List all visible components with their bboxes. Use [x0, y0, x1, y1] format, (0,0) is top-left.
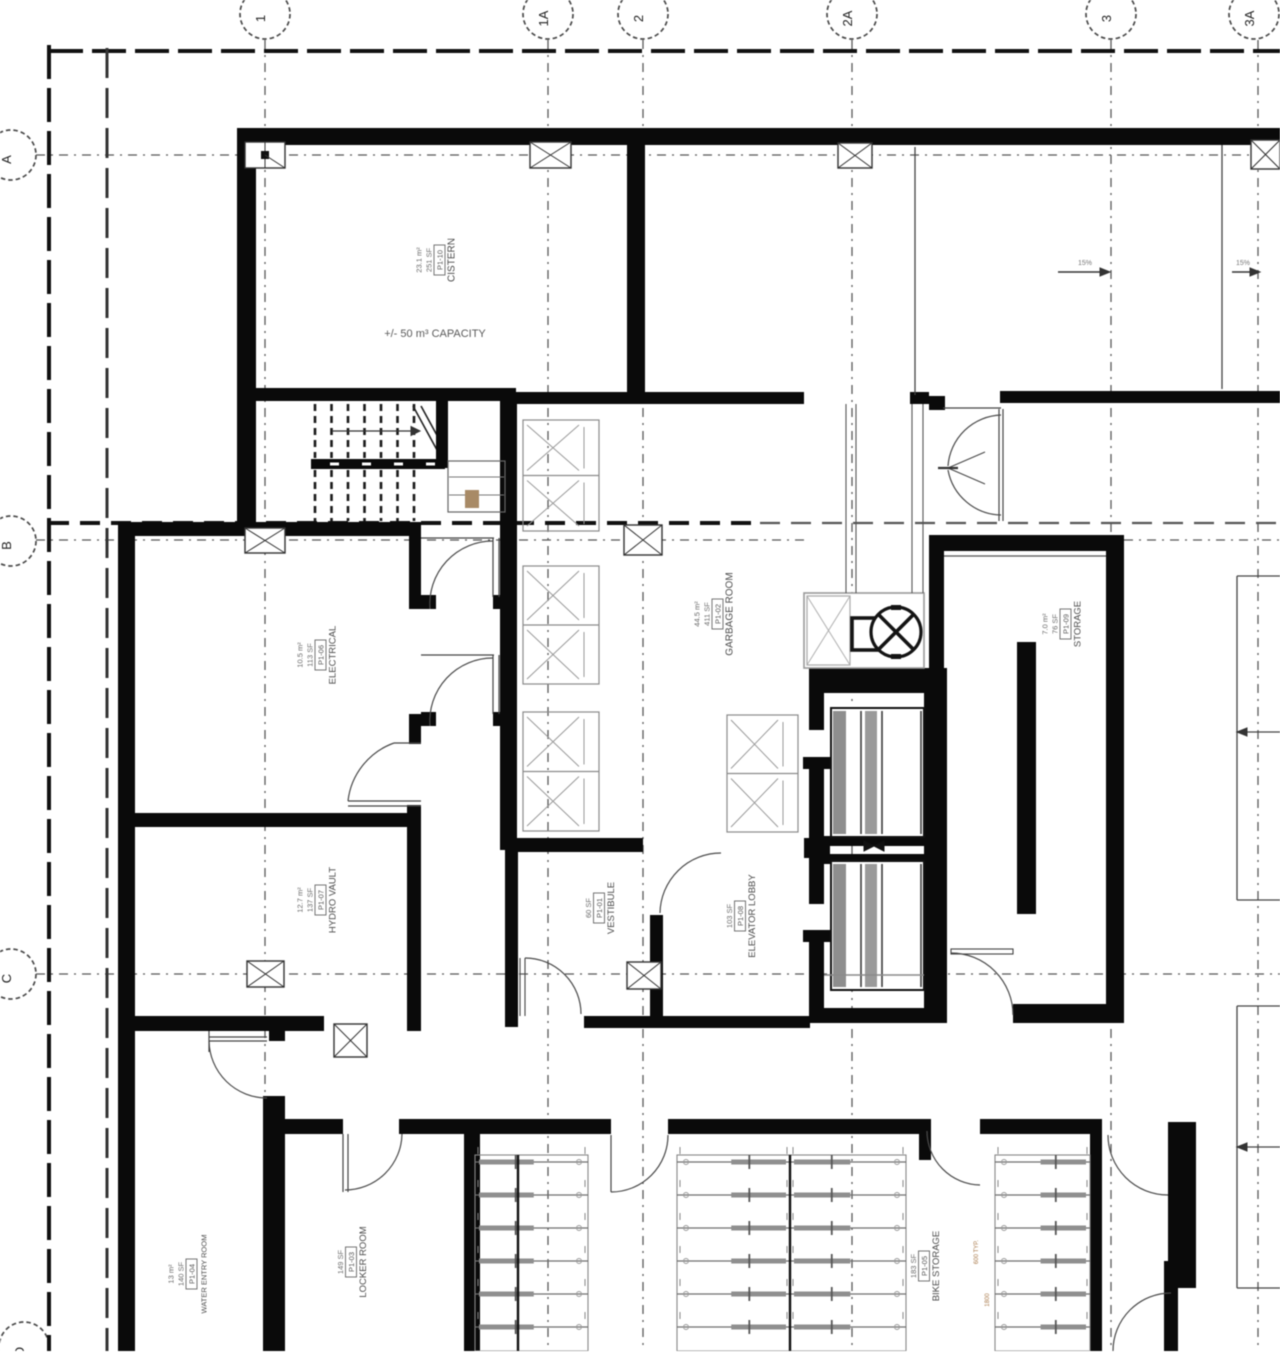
- svg-text:P1-06: P1-06: [317, 645, 326, 665]
- svg-text:ELECTRICAL: ELECTRICAL: [328, 626, 339, 685]
- svg-text:P1-07: P1-07: [317, 890, 326, 910]
- svg-text:P1-04: P1-04: [188, 1264, 197, 1284]
- svg-text:C: C: [0, 974, 14, 983]
- svg-text:BIKE STORAGE: BIKE STORAGE: [931, 1231, 942, 1302]
- svg-text:GARBAGE ROOM: GARBAGE ROOM: [725, 572, 736, 655]
- svg-text:251 SF: 251 SF: [425, 247, 434, 272]
- svg-text:2: 2: [631, 15, 646, 22]
- svg-text:+/- 50 m³ CAPACITY: +/- 50 m³ CAPACITY: [384, 328, 486, 340]
- svg-text:1800: 1800: [985, 1293, 991, 1307]
- svg-text:ELEVATOR LOBBY: ELEVATOR LOBBY: [747, 874, 758, 958]
- svg-text:P1-09: P1-09: [1062, 614, 1071, 634]
- svg-text:137 SF: 137 SF: [306, 887, 315, 912]
- svg-text:LOCKER ROOM: LOCKER ROOM: [358, 1226, 369, 1297]
- svg-text:P1-02: P1-02: [714, 604, 723, 624]
- svg-text:7.0 m²: 7.0 m²: [1041, 613, 1050, 635]
- svg-text:P1-10: P1-10: [436, 250, 445, 270]
- svg-text:P1-08: P1-08: [736, 906, 745, 926]
- svg-text:13 m²: 13 m²: [167, 1264, 176, 1284]
- svg-text:HYDRO VAULT: HYDRO VAULT: [328, 867, 339, 933]
- svg-text:A: A: [0, 155, 14, 164]
- svg-text:VESTIBULE: VESTIBULE: [606, 882, 617, 934]
- svg-text:76 SF: 76 SF: [1051, 614, 1060, 634]
- svg-text:P1-01: P1-01: [595, 898, 604, 918]
- svg-text:P1-05: P1-05: [920, 1256, 929, 1276]
- svg-text:WATER ENTRY ROOM: WATER ENTRY ROOM: [200, 1235, 209, 1314]
- svg-text:12.7 m²: 12.7 m²: [296, 887, 305, 913]
- svg-text:15%: 15%: [1236, 260, 1250, 267]
- svg-text:140 SF: 140 SF: [177, 1261, 186, 1286]
- svg-text:P1-03: P1-03: [347, 1252, 356, 1272]
- svg-text:D: D: [12, 1347, 27, 1351]
- svg-text:15%: 15%: [1078, 260, 1092, 267]
- svg-text:STORAGE: STORAGE: [1073, 601, 1084, 647]
- svg-text:23.1 m²: 23.1 m²: [415, 247, 424, 273]
- svg-text:411 SF: 411 SF: [703, 602, 712, 626]
- svg-text:CISTERN: CISTERN: [447, 238, 458, 282]
- svg-text:113 SF: 113 SF: [306, 643, 315, 667]
- svg-text:60 SF: 60 SF: [584, 898, 593, 918]
- svg-text:1A: 1A: [536, 10, 551, 26]
- svg-text:149 SF: 149 SF: [336, 1249, 345, 1274]
- svg-text:600 TYP.: 600 TYP.: [974, 1240, 980, 1264]
- svg-text:2A: 2A: [840, 10, 855, 26]
- svg-text:3: 3: [1099, 15, 1114, 22]
- svg-text:1: 1: [253, 15, 268, 22]
- svg-text:103 SF: 103 SF: [725, 903, 734, 928]
- svg-text:44.5 m²: 44.5 m²: [693, 601, 702, 627]
- svg-text:B: B: [0, 541, 14, 550]
- svg-text:10.5 m²: 10.5 m²: [296, 642, 305, 668]
- svg-text:3A: 3A: [1242, 10, 1257, 26]
- svg-text:183 SF: 183 SF: [909, 1253, 918, 1278]
